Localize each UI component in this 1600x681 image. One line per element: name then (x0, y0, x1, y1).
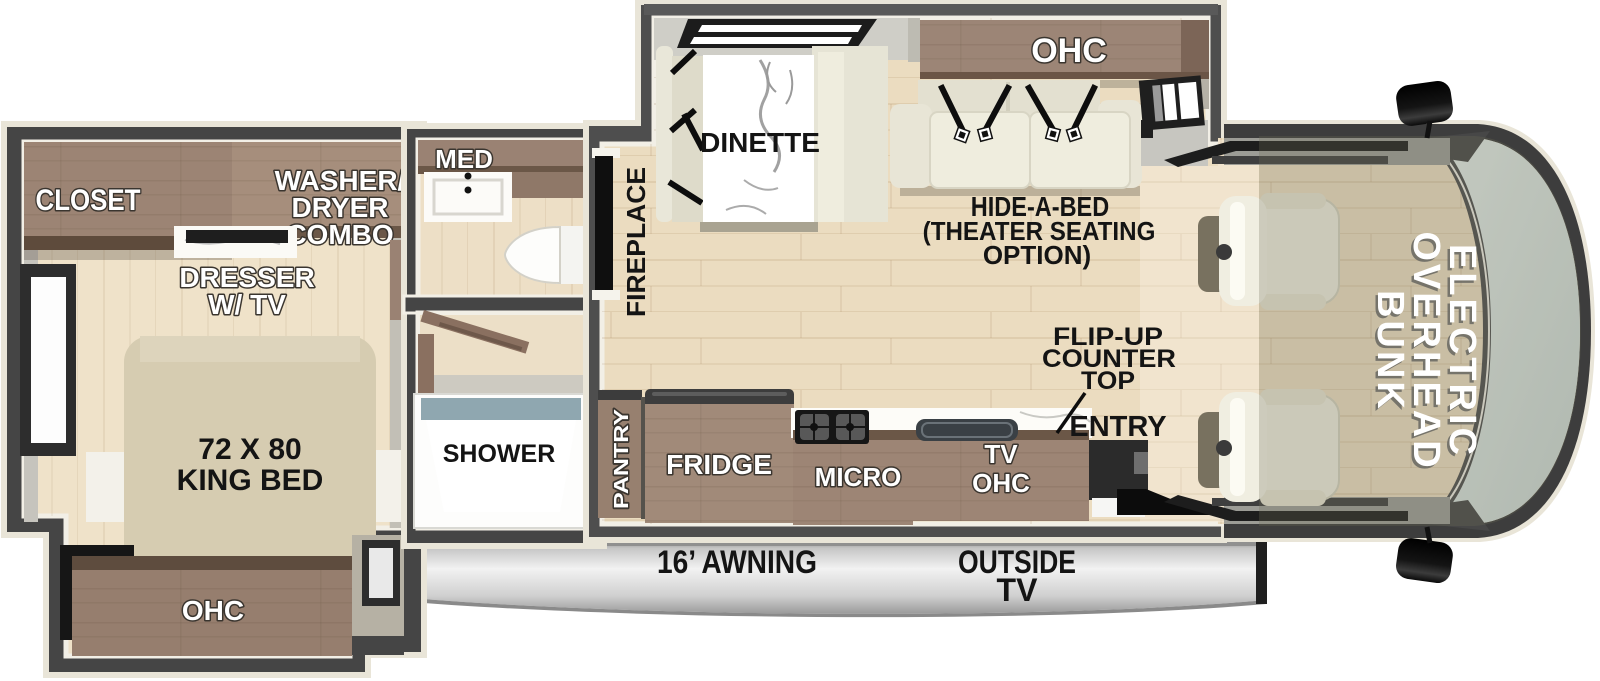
svg-text:OHC: OHC (182, 595, 244, 626)
svg-text:DINETTE: DINETTE (700, 127, 820, 158)
svg-text:TV: TV (984, 439, 1018, 469)
svg-text:FIREPLACE: FIREPLACE (621, 167, 651, 317)
svg-text:16’ AWNING: 16’ AWNING (657, 544, 817, 580)
svg-text:KING BED: KING BED (177, 464, 324, 497)
svg-text:MED: MED (435, 144, 493, 174)
svg-text:OPTION): OPTION) (983, 240, 1091, 270)
svg-text:PANTRY: PANTRY (611, 408, 633, 509)
svg-text:ENTRY: ENTRY (1069, 411, 1166, 443)
svg-text:TOP: TOP (1081, 367, 1135, 395)
svg-text:72 X 80: 72 X 80 (198, 433, 301, 466)
svg-text:OHC: OHC (972, 468, 1030, 498)
svg-text:W/ TV: W/ TV (208, 289, 286, 320)
svg-text:FRIDGE: FRIDGE (666, 449, 772, 480)
svg-text:OHC: OHC (1031, 32, 1107, 70)
svg-text:MICRO: MICRO (815, 462, 902, 492)
svg-text:COMBO: COMBO (286, 219, 393, 250)
svg-text:CLOSET: CLOSET (36, 184, 141, 217)
svg-text:BUNK: BUNK (1369, 290, 1411, 412)
svg-text:TV: TV (997, 572, 1039, 608)
svg-text:SHOWER: SHOWER (443, 440, 556, 468)
